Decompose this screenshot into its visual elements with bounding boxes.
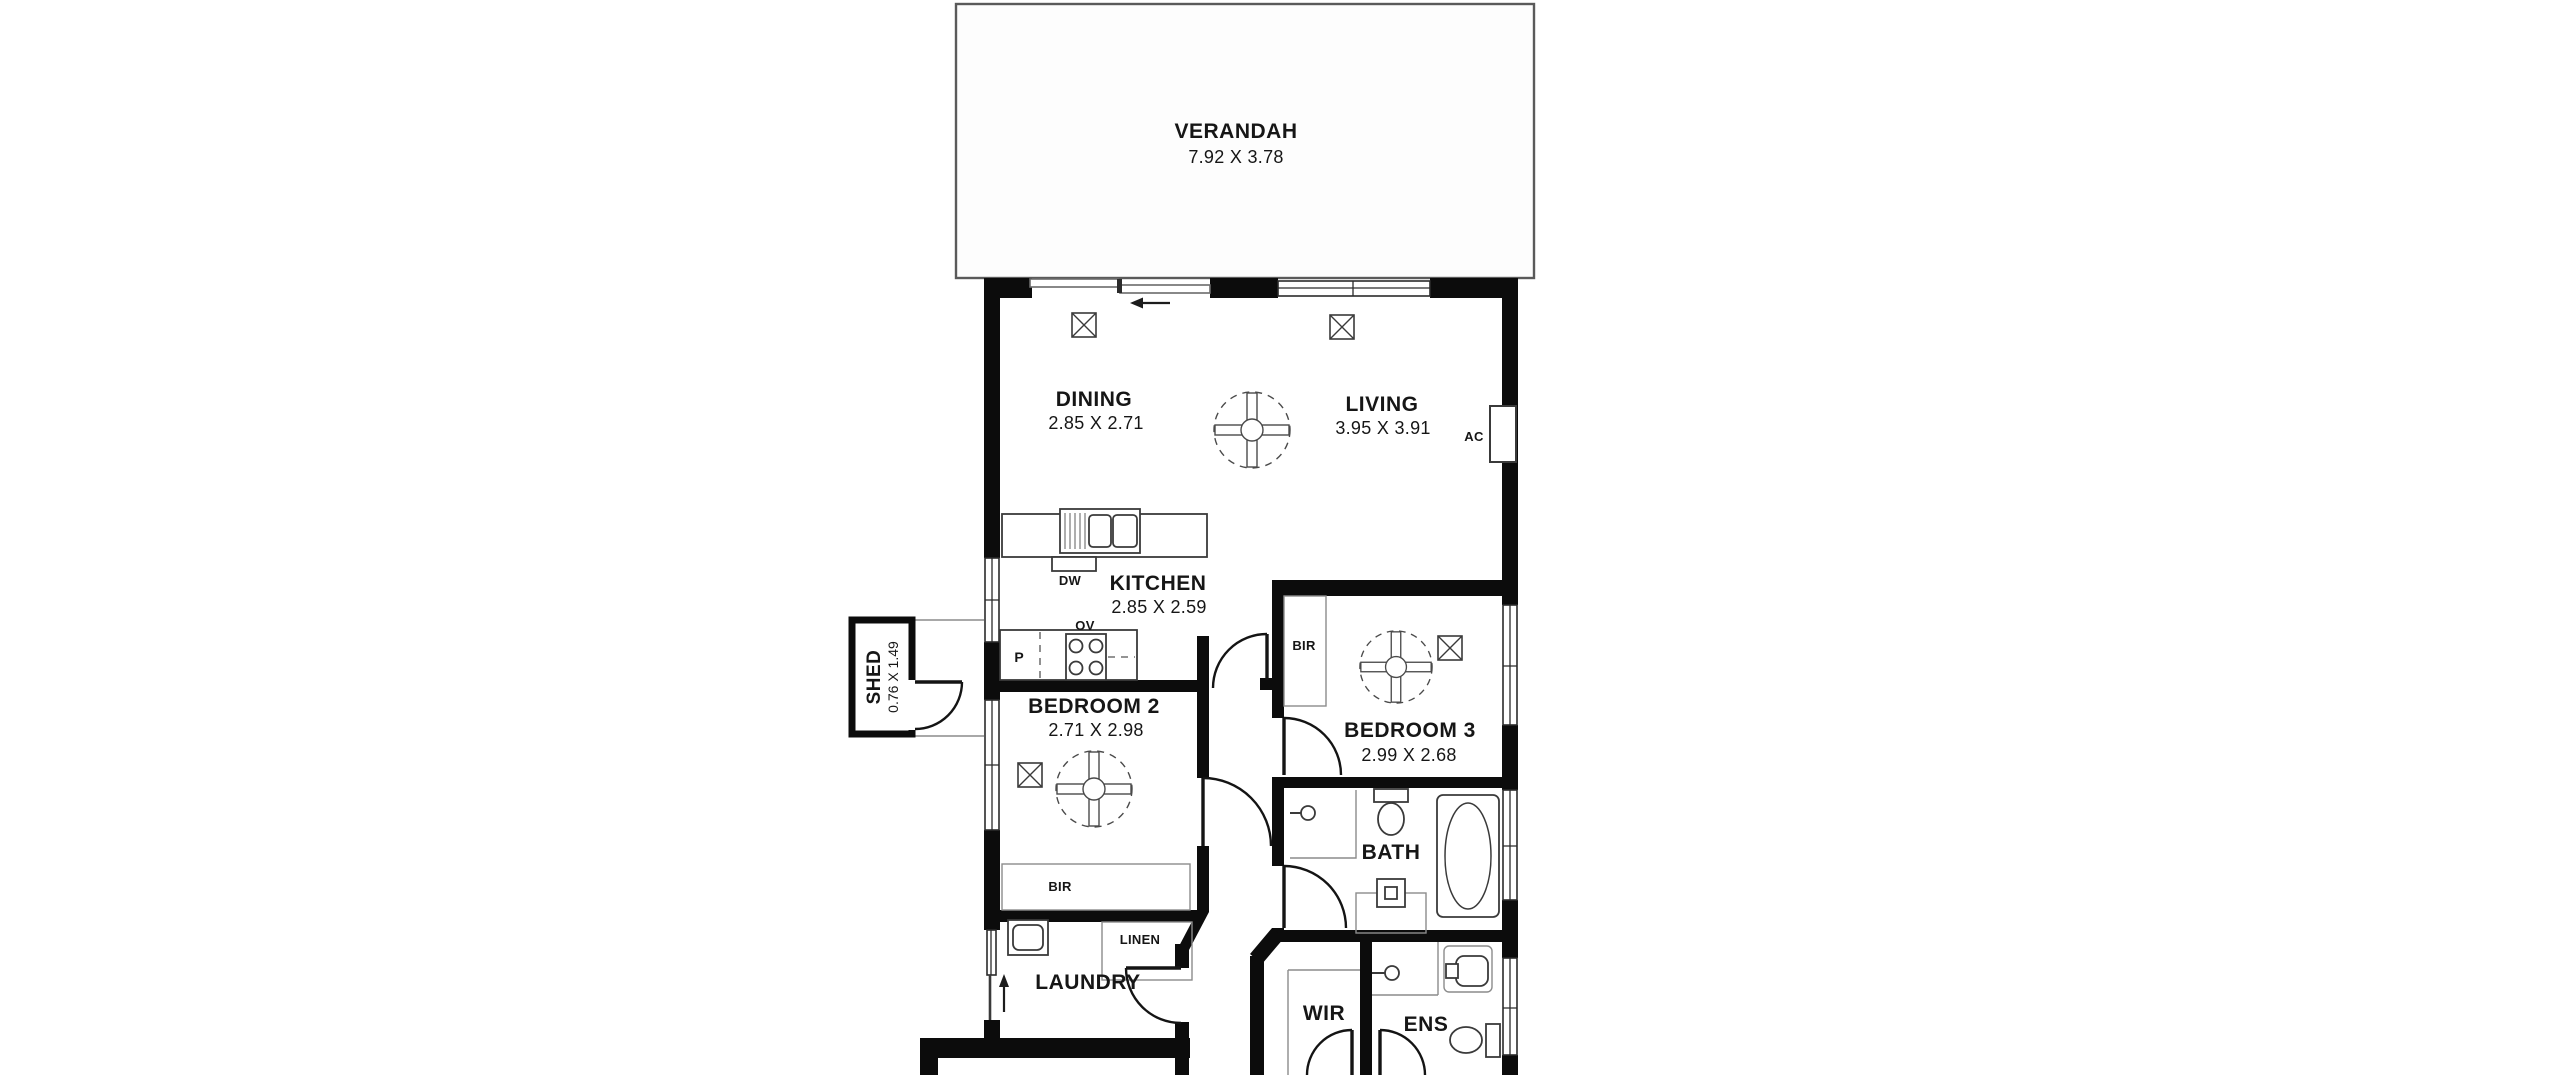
shower-icon	[1372, 942, 1438, 995]
dishwasher-icon	[1052, 557, 1096, 571]
entry-arrow-icon	[1130, 298, 1170, 309]
room-label-ens: ENS	[1404, 1013, 1449, 1036]
room-label-dining: DINING	[1056, 388, 1133, 411]
sliding-door	[1030, 279, 1210, 293]
room-dims-living: 3.95 X 3.91	[1335, 418, 1430, 438]
toilet-icon	[1450, 1024, 1500, 1057]
room-label-laundry: LAUNDRY	[1035, 971, 1140, 994]
bedroom3-door	[1284, 718, 1341, 775]
ens-fixtures	[1372, 942, 1500, 1057]
room-label-wir: WIR	[1303, 1002, 1345, 1025]
room-label-verandah: VERANDAH	[1174, 120, 1297, 143]
shower-icon	[1290, 790, 1356, 858]
kitchen-side-wall	[1197, 636, 1209, 682]
kitchen-door	[1213, 634, 1267, 688]
room-dims-bedroom2: 2.71 X 2.98	[1048, 720, 1143, 740]
shed-door-opening	[905, 680, 917, 730]
sliding-door-step	[1117, 279, 1122, 293]
bathtub-icon	[1437, 795, 1499, 917]
label-oven: OV	[1075, 618, 1094, 633]
window	[1503, 790, 1517, 900]
label-pantry: P	[1014, 649, 1023, 665]
laundry-arrow-icon	[999, 974, 1009, 1012]
light-icon	[1330, 315, 1354, 339]
bed3-bath-wall	[1272, 777, 1503, 788]
room-label-bath: BATH	[1362, 841, 1421, 864]
bath-left-wall	[1272, 788, 1284, 866]
living-bed3-wall	[1272, 580, 1518, 596]
toilet-icon	[1374, 789, 1408, 835]
ceiling-fan-icon	[1056, 751, 1132, 827]
wir-left-wall	[1250, 956, 1264, 1075]
bed2-robe	[1002, 864, 1190, 910]
bedroom2-door	[1203, 778, 1271, 846]
wir-ens-divider-wall	[1360, 930, 1372, 1075]
label-robe-bedroom2: BIR	[1048, 879, 1072, 894]
bed2-right-wall-lower	[1197, 846, 1209, 912]
ens-door	[1380, 1030, 1425, 1075]
floorplan-svg: VERANDAH 7.92 X 3.78 DINING 2.85 X 2.71 …	[0, 0, 2560, 1075]
room-dims-bedroom3: 2.99 X 2.68	[1361, 745, 1456, 765]
porch-edge-wall	[920, 1038, 1190, 1058]
window	[1503, 605, 1517, 725]
vanity-icon	[1356, 879, 1426, 933]
cooktop-icon	[1066, 634, 1106, 680]
room-label-shed: SHED	[864, 650, 885, 705]
room-dims-verandah: 7.92 X 3.78	[1188, 147, 1283, 167]
label-linen: LINEN	[1120, 932, 1161, 947]
window	[985, 700, 999, 830]
basin-icon	[1444, 946, 1492, 992]
label-dishwasher: DW	[1059, 573, 1082, 588]
wir-ens-top-wall	[1278, 930, 1503, 942]
window	[985, 558, 999, 642]
room-dims-kitchen: 2.85 X 2.59	[1111, 597, 1206, 617]
aircon-icon	[1490, 406, 1516, 462]
ceiling-fan-icon	[1360, 631, 1432, 703]
bath-door	[1284, 866, 1346, 928]
floorplan-page: VERANDAH 7.92 X 3.78 DINING 2.85 X 2.71 …	[0, 0, 2560, 1075]
wir-door	[1307, 1030, 1352, 1075]
hall-right-wall	[1272, 596, 1284, 718]
room-dims-dining: 2.85 X 2.71	[1048, 413, 1143, 433]
label-robe-bedroom3: BIR	[1292, 638, 1316, 653]
laundry-fixtures	[999, 920, 1048, 1012]
room-dims-shed: 0.76 X 1.49	[885, 641, 901, 713]
room-label-bedroom3: BEDROOM 3	[1344, 719, 1476, 742]
window	[987, 930, 996, 975]
light-icon	[1018, 763, 1042, 787]
room-label-kitchen: KITCHEN	[1110, 572, 1207, 595]
laundry-trough-icon	[1008, 920, 1048, 955]
room-label-bedroom2: BEDROOM 2	[1028, 695, 1160, 718]
bed2-right-wall-upper	[1197, 692, 1209, 778]
laundry-right-wall	[1175, 944, 1189, 968]
room-label-living: LIVING	[1345, 393, 1418, 416]
window	[1503, 958, 1517, 1055]
sink-icon	[1060, 509, 1140, 553]
ceiling-fan-icon	[1214, 392, 1290, 468]
kitchen-bed2-wall	[984, 680, 1209, 692]
light-icon	[1072, 313, 1096, 337]
light-icon	[1438, 636, 1462, 660]
label-aircon: AC	[1464, 429, 1484, 444]
window	[1278, 281, 1430, 296]
